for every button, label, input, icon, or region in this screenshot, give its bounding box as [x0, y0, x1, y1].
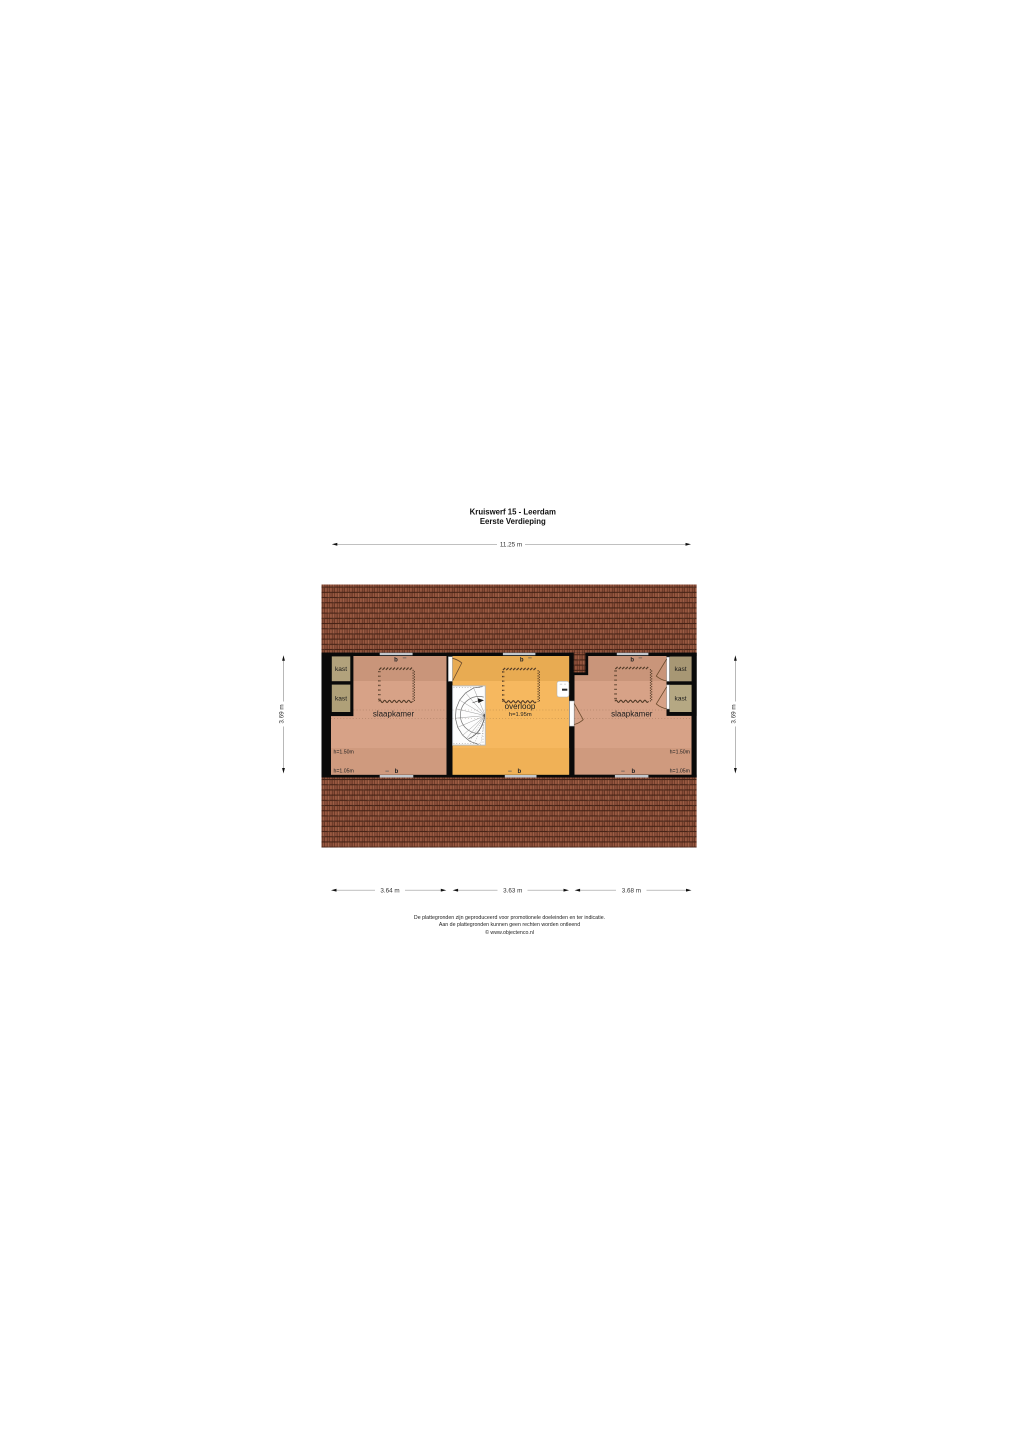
svg-text:b: b: [394, 657, 398, 663]
svg-text:b: b: [630, 657, 634, 663]
svg-text:kast: kast: [675, 666, 687, 673]
svg-text:kast: kast: [675, 696, 687, 703]
svg-text:h=1.05m: h=1.05m: [670, 768, 690, 774]
svg-text:3.69 m: 3.69 m: [730, 704, 737, 723]
svg-text:3.68 m: 3.68 m: [622, 887, 641, 894]
svg-text:kast: kast: [335, 696, 347, 703]
svg-text:slaapkamer: slaapkamer: [373, 709, 415, 718]
svg-text:3.64 m: 3.64 m: [380, 887, 399, 894]
svg-text:b: b: [517, 769, 521, 775]
svg-text:© www.objectenco.nl: © www.objectenco.nl: [485, 929, 534, 936]
svg-text:b: b: [395, 769, 399, 775]
svg-text:h=1.50m: h=1.50m: [334, 749, 354, 755]
svg-text:kast: kast: [335, 666, 347, 673]
svg-text:De plattegronden zijn geproduc: De plattegronden zijn geproduceerd voor …: [414, 915, 605, 921]
svg-text:b: b: [520, 657, 524, 663]
svg-text:Eerste Verdieping: Eerste Verdieping: [480, 517, 546, 526]
svg-text:b: b: [631, 769, 635, 775]
svg-text:h=1.50m: h=1.50m: [670, 749, 690, 755]
svg-text:3.69 m: 3.69 m: [279, 704, 286, 723]
svg-text:overloop: overloop: [505, 702, 536, 711]
svg-text:h=1.95m: h=1.95m: [509, 712, 532, 718]
svg-text:Kruiswerf 15 - Leerdam: Kruiswerf 15 - Leerdam: [470, 508, 556, 517]
svg-text:slaapkamer: slaapkamer: [611, 709, 653, 718]
svg-text:h=1.05m: h=1.05m: [334, 768, 354, 774]
svg-text:11.25 m: 11.25 m: [500, 542, 522, 549]
svg-text:3.63 m: 3.63 m: [503, 887, 522, 894]
svg-text:Aan de plattegronden kunnen ge: Aan de plattegronden kunnen geen rechten…: [439, 922, 580, 928]
